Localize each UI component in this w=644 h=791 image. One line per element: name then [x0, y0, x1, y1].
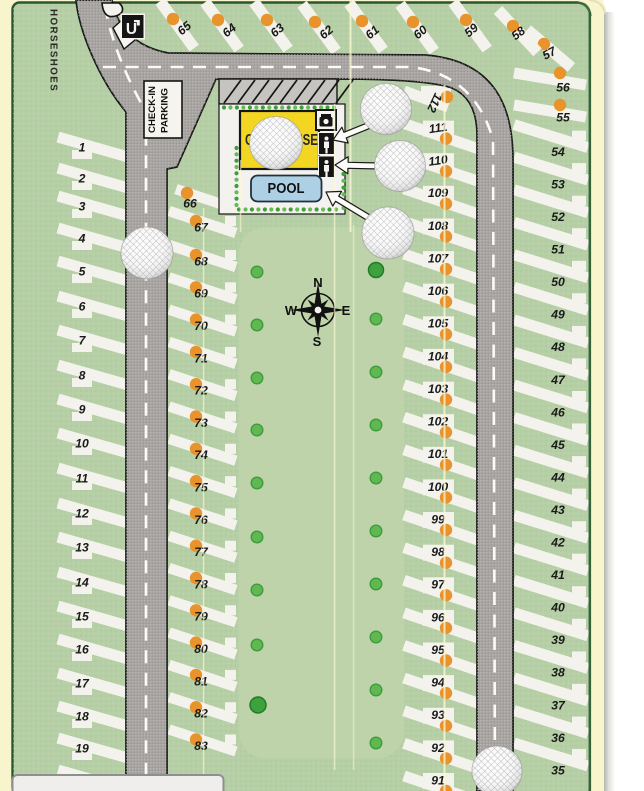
- svg-text:E: E: [342, 303, 351, 318]
- svg-text:S: S: [313, 334, 322, 349]
- svg-text:35: 35: [551, 763, 565, 777]
- svg-text:6: 6: [79, 299, 86, 313]
- svg-text:93: 93: [431, 708, 445, 722]
- svg-text:44: 44: [550, 470, 565, 484]
- svg-text:17: 17: [75, 676, 90, 690]
- svg-text:2: 2: [78, 171, 86, 185]
- svg-text:96: 96: [431, 610, 445, 624]
- svg-text:79: 79: [194, 610, 208, 624]
- svg-text:3: 3: [79, 199, 86, 213]
- svg-text:71: 71: [194, 351, 208, 365]
- svg-text:18: 18: [75, 709, 89, 723]
- svg-text:110: 110: [427, 152, 448, 169]
- svg-text:56: 56: [556, 80, 570, 94]
- svg-text:14: 14: [75, 575, 89, 589]
- svg-text:36: 36: [551, 731, 565, 745]
- svg-text:38: 38: [551, 666, 565, 680]
- svg-text:U: U: [126, 21, 137, 38]
- svg-text:W: W: [285, 303, 298, 318]
- svg-text:78: 78: [194, 577, 208, 591]
- svg-text:9: 9: [79, 402, 86, 416]
- svg-text:53: 53: [551, 178, 565, 192]
- svg-text:69: 69: [194, 287, 208, 301]
- svg-text:52: 52: [551, 210, 565, 224]
- svg-text:77: 77: [194, 545, 209, 559]
- svg-text:5: 5: [79, 264, 86, 278]
- svg-text:98: 98: [431, 545, 445, 559]
- svg-text:HORSESHOES: HORSESHOES: [48, 9, 59, 92]
- svg-text:49: 49: [550, 308, 565, 322]
- svg-text:70: 70: [194, 319, 208, 333]
- svg-text:83: 83: [194, 739, 208, 753]
- svg-text:11: 11: [76, 471, 89, 485]
- svg-text:51: 51: [551, 243, 565, 257]
- svg-text:82: 82: [194, 707, 208, 721]
- svg-text:N: N: [313, 275, 322, 290]
- svg-text:POOL: POOL: [268, 181, 305, 197]
- svg-text:75: 75: [194, 481, 208, 495]
- svg-text:76: 76: [194, 513, 208, 527]
- svg-text:4: 4: [78, 231, 86, 245]
- svg-text:107: 107: [428, 252, 450, 266]
- svg-text:94: 94: [431, 676, 445, 690]
- svg-text:13: 13: [75, 540, 89, 554]
- svg-text:72: 72: [194, 384, 208, 398]
- svg-text:67: 67: [194, 220, 209, 234]
- svg-text:48: 48: [550, 340, 565, 354]
- svg-text:45: 45: [550, 438, 565, 452]
- svg-text:92: 92: [431, 741, 445, 755]
- svg-text:40: 40: [550, 601, 565, 615]
- svg-text:54: 54: [551, 145, 565, 159]
- svg-text:PARKING: PARKING: [160, 88, 170, 133]
- svg-text:47: 47: [550, 373, 566, 387]
- svg-text:10: 10: [75, 436, 89, 450]
- svg-text:16: 16: [75, 642, 89, 656]
- svg-text:50: 50: [551, 275, 565, 289]
- svg-text:99: 99: [431, 512, 445, 526]
- svg-text:41: 41: [550, 568, 565, 582]
- svg-text:19: 19: [75, 741, 89, 755]
- svg-text:15: 15: [75, 609, 89, 623]
- svg-text:68: 68: [194, 254, 208, 268]
- svg-text:73: 73: [194, 416, 208, 430]
- svg-text:81: 81: [194, 674, 208, 688]
- svg-text:42: 42: [550, 536, 565, 550]
- svg-text:91: 91: [431, 773, 445, 787]
- svg-text:74: 74: [194, 448, 208, 462]
- svg-text:55: 55: [556, 110, 570, 124]
- svg-text:66: 66: [183, 196, 197, 210]
- svg-text:1: 1: [79, 140, 86, 154]
- svg-text:43: 43: [550, 503, 565, 517]
- svg-text:8: 8: [79, 368, 86, 382]
- svg-text:80: 80: [194, 642, 208, 656]
- svg-text:95: 95: [431, 643, 445, 657]
- svg-text:46: 46: [550, 405, 565, 419]
- svg-text:37: 37: [551, 698, 566, 712]
- svg-text:39: 39: [551, 633, 565, 647]
- svg-text:12: 12: [75, 506, 89, 520]
- svg-text:CHECK-IN: CHECK-IN: [147, 86, 157, 133]
